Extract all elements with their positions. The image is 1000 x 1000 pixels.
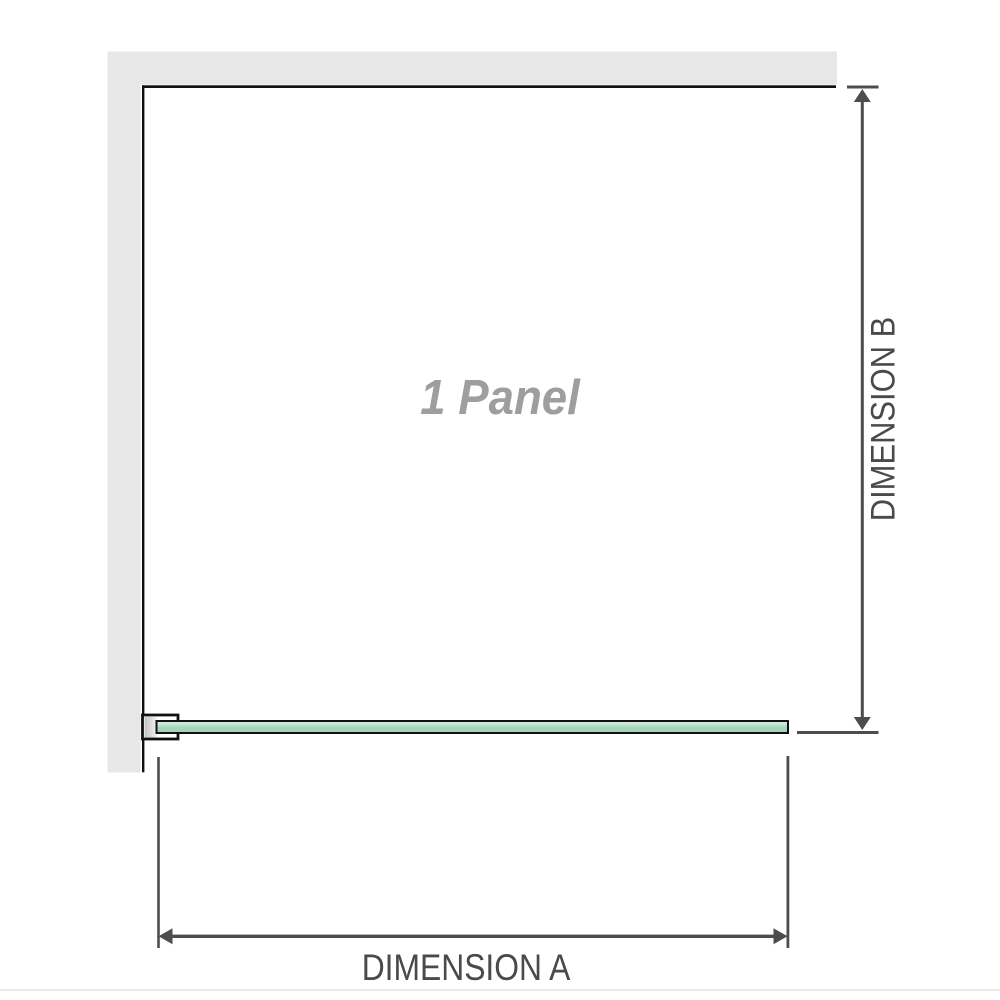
svg-text:DIMENSION A: DIMENSION A bbox=[362, 948, 571, 989]
svg-text:1 Panel: 1 Panel bbox=[420, 371, 580, 426]
svg-text:DIMENSION B: DIMENSION B bbox=[864, 317, 902, 522]
